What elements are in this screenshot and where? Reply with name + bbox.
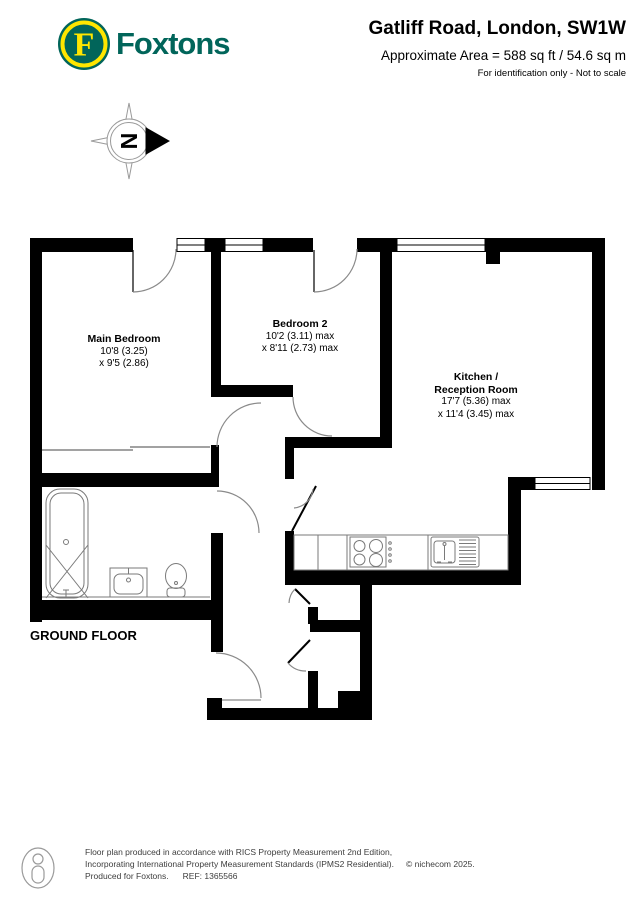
floorplan-page: F N bbox=[0, 0, 636, 900]
footer-produced: Produced for Foxtons. bbox=[85, 871, 169, 881]
room-label-kitchen-reception: Kitchen / Reception Room 17'7 (5.36) max… bbox=[434, 371, 517, 421]
room-name: Kitchen / bbox=[434, 371, 517, 384]
footer-copyright: © nichecom 2025. bbox=[406, 859, 475, 869]
room-dim: x 9'5 (2.86) bbox=[88, 358, 161, 371]
svg-text:F: F bbox=[74, 27, 95, 64]
room-label-main-bedroom: Main Bedroom 10'8 (3.25) x 9'5 (2.86) bbox=[88, 333, 161, 371]
walls bbox=[30, 238, 605, 720]
approximate-area: Approximate Area = 588 sq ft / 54.6 sq m bbox=[381, 48, 626, 63]
floor-label: GROUND FLOOR bbox=[30, 628, 137, 643]
room-name: Reception Room bbox=[434, 384, 517, 397]
bathroom-fixtures bbox=[42, 489, 210, 598]
room-dim: x 11'4 (3.45) max bbox=[434, 409, 517, 422]
svg-text:N: N bbox=[116, 133, 142, 150]
footer-line2: Incorporating International Property Mea… bbox=[85, 858, 475, 870]
toilet bbox=[166, 564, 187, 598]
compass-icon: N bbox=[91, 103, 169, 179]
room-dim: 10'2 (3.11) max bbox=[262, 331, 338, 344]
room-dim: x 8'11 (2.73) max bbox=[262, 343, 338, 356]
footer-ipms: Incorporating International Property Mea… bbox=[85, 859, 394, 869]
page-title: Gatliff Road, London, SW1W bbox=[368, 18, 626, 40]
room-label-bedroom2: Bedroom 2 10'2 (3.11) max x 8'11 (2.73) … bbox=[262, 318, 338, 356]
footer-line1: Floor plan produced in accordance with R… bbox=[85, 846, 475, 858]
wardrobe-doors bbox=[42, 447, 210, 450]
nichecom-icon bbox=[22, 848, 54, 888]
basin bbox=[110, 568, 147, 597]
disclaimer-note: For identification only - Not to scale bbox=[478, 68, 626, 79]
footer-line3: Produced for Foxtons.REF: 1365566 bbox=[85, 870, 475, 882]
room-name: Main Bedroom bbox=[88, 333, 161, 346]
bathtub bbox=[46, 489, 88, 598]
foxtons-logo-icon: F bbox=[58, 18, 110, 70]
footer-ref: REF: 1365566 bbox=[183, 871, 238, 881]
room-name: Bedroom 2 bbox=[262, 318, 338, 331]
footer-disclaimer: Floor plan produced in accordance with R… bbox=[85, 846, 475, 882]
kitchen-fixtures bbox=[294, 535, 508, 570]
room-dim: 10'8 (3.25) bbox=[88, 346, 161, 359]
hob bbox=[350, 537, 391, 567]
brand-wordmark: Foxtons bbox=[116, 26, 230, 62]
floorplan-drawing: F N bbox=[0, 0, 636, 900]
room-dim: 17'7 (5.36) max bbox=[434, 396, 517, 409]
kitchen-sink bbox=[431, 537, 479, 567]
